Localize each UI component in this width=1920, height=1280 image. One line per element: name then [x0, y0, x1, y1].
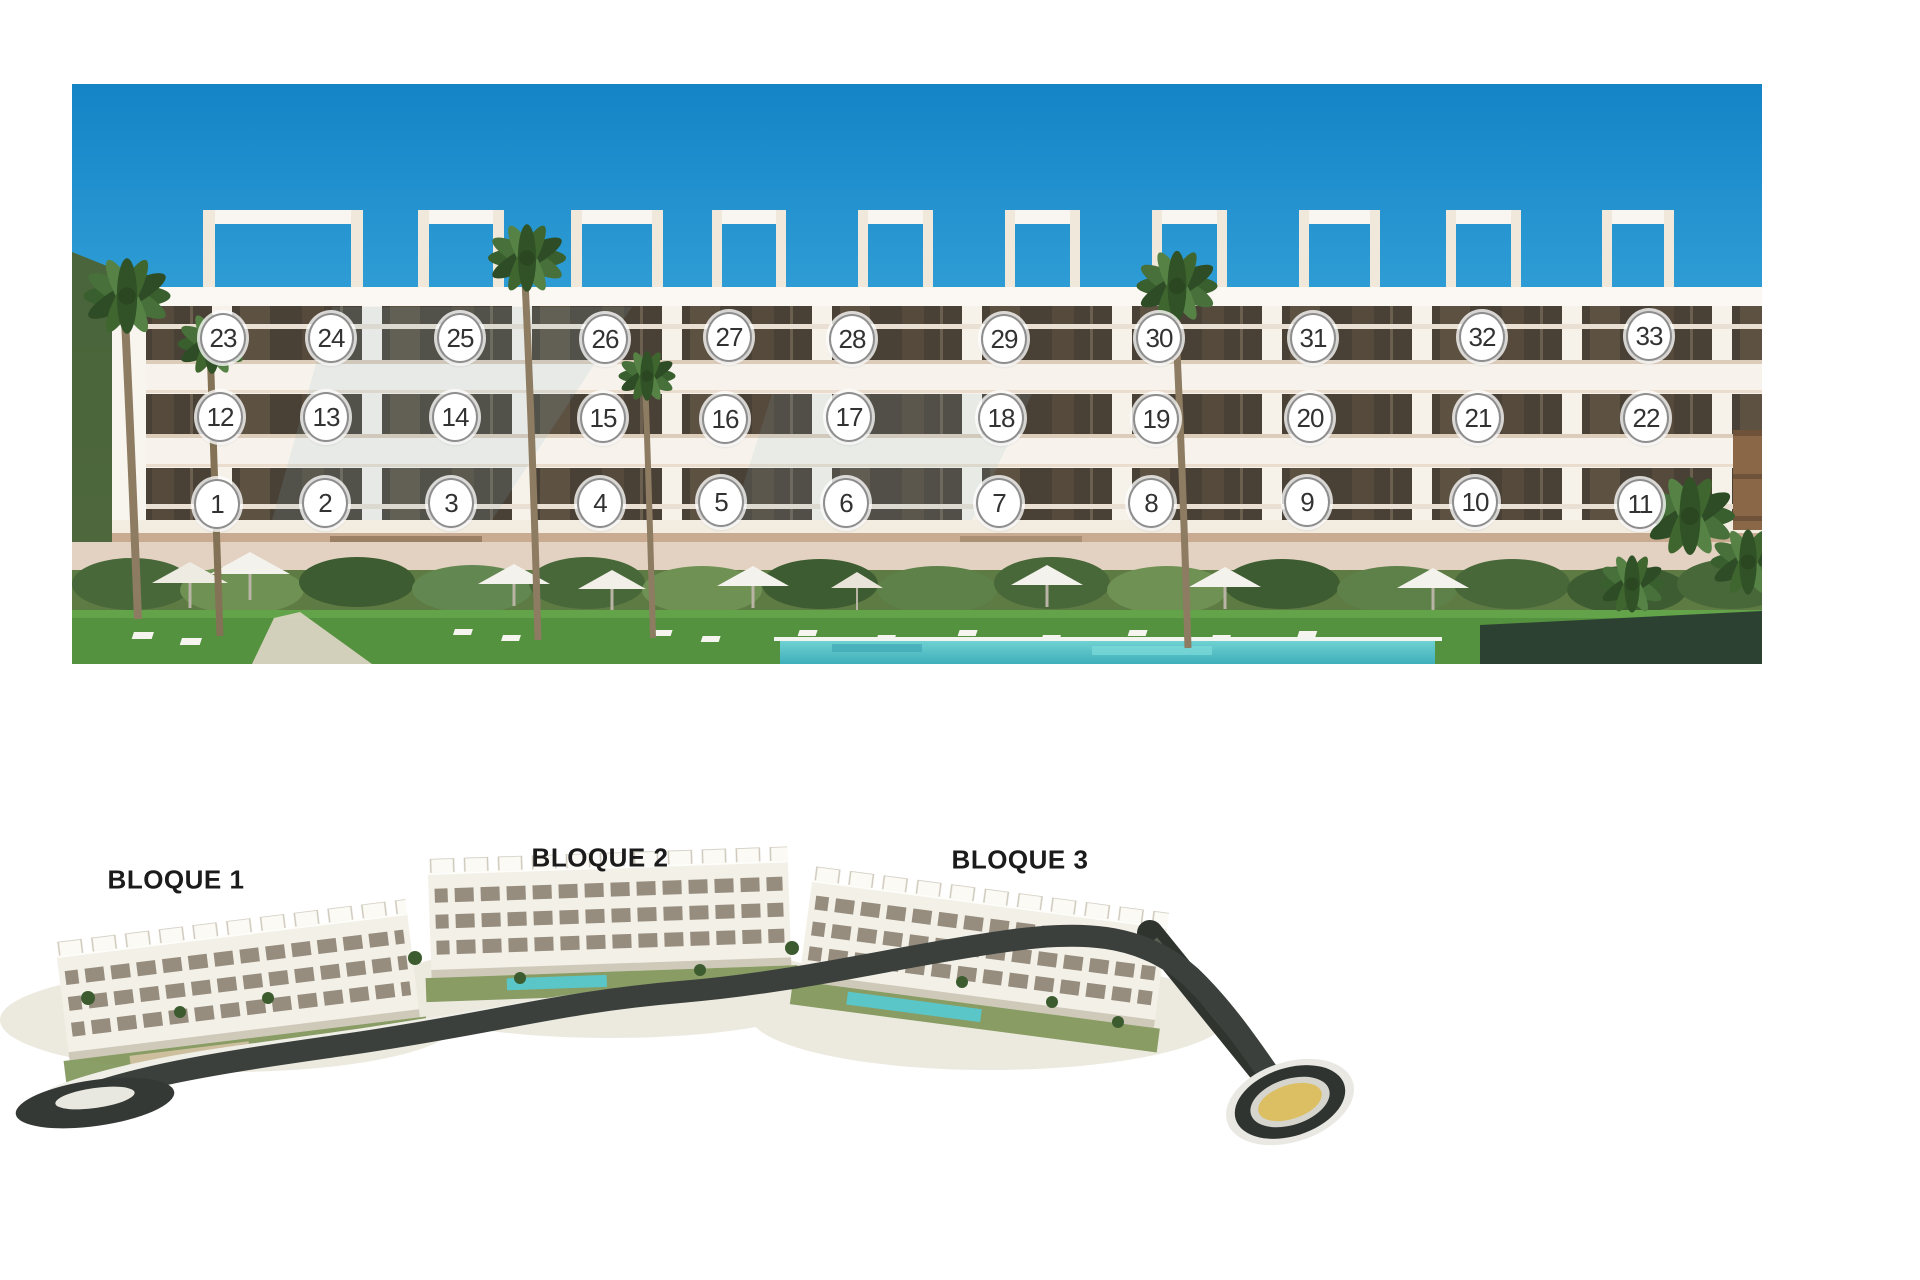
unit-marker-6[interactable]: 6 — [823, 478, 869, 528]
unit-marker-32[interactable]: 32 — [1459, 312, 1505, 362]
unit-markers-layer: 2324252627282930313233121314151617181920… — [72, 84, 1762, 664]
unit-marker-11[interactable]: 11 — [1617, 479, 1663, 529]
unit-marker-23[interactable]: 23 — [200, 313, 246, 363]
unit-marker-33[interactable]: 33 — [1626, 311, 1672, 361]
unit-marker-1[interactable]: 1 — [194, 479, 240, 529]
unit-marker-16[interactable]: 16 — [702, 394, 748, 444]
unit-marker-28[interactable]: 28 — [829, 314, 875, 364]
unit-marker-30[interactable]: 30 — [1136, 313, 1182, 363]
block-label-bloque-3: BLOQUE 3 — [952, 845, 1089, 876]
unit-marker-10[interactable]: 10 — [1452, 477, 1498, 527]
unit-marker-31[interactable]: 31 — [1290, 313, 1336, 363]
unit-marker-7[interactable]: 7 — [976, 478, 1022, 528]
unit-marker-3[interactable]: 3 — [428, 478, 474, 528]
unit-marker-8[interactable]: 8 — [1128, 478, 1174, 528]
unit-marker-2[interactable]: 2 — [302, 478, 348, 528]
unit-marker-19[interactable]: 19 — [1133, 394, 1179, 444]
unit-marker-5[interactable]: 5 — [698, 477, 744, 527]
block-label-bloque-2: BLOQUE 2 — [532, 843, 669, 874]
unit-marker-17[interactable]: 17 — [826, 392, 872, 442]
unit-marker-21[interactable]: 21 — [1455, 393, 1501, 443]
unit-marker-18[interactable]: 18 — [978, 393, 1024, 443]
unit-marker-13[interactable]: 13 — [303, 392, 349, 442]
unit-marker-29[interactable]: 29 — [981, 314, 1027, 364]
unit-marker-20[interactable]: 20 — [1287, 393, 1333, 443]
unit-marker-4[interactable]: 4 — [577, 478, 623, 528]
unit-marker-14[interactable]: 14 — [432, 392, 478, 442]
unit-marker-12[interactable]: 12 — [197, 392, 243, 442]
unit-marker-22[interactable]: 22 — [1623, 393, 1669, 443]
unit-marker-27[interactable]: 27 — [706, 312, 752, 362]
unit-marker-15[interactable]: 15 — [580, 393, 626, 443]
unit-marker-9[interactable]: 9 — [1284, 477, 1330, 527]
unit-marker-24[interactable]: 24 — [308, 313, 354, 363]
front-elevation-render: 2324252627282930313233121314151617181920… — [72, 84, 1762, 664]
site-plan-render: BLOQUE 1 BLOQUE 2 BLOQUE 3 — [0, 830, 1400, 1160]
block-label-bloque-1: BLOQUE 1 — [108, 865, 245, 896]
unit-marker-26[interactable]: 26 — [582, 314, 628, 364]
unit-marker-25[interactable]: 25 — [437, 313, 483, 363]
page-canvas: 2324252627282930313233121314151617181920… — [0, 0, 1920, 1280]
